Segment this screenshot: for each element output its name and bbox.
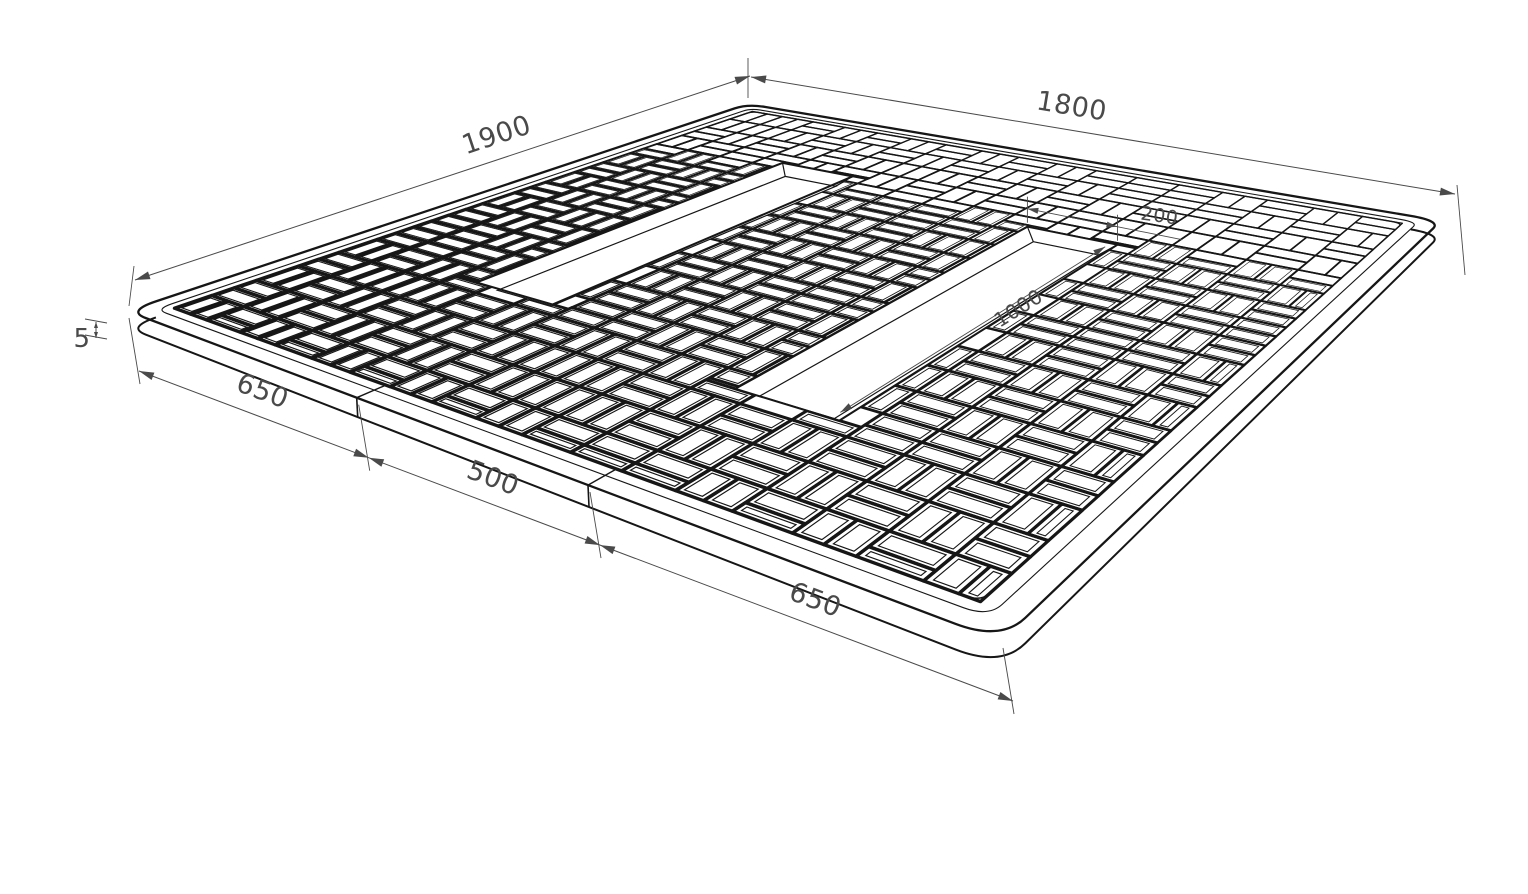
dimension-label-1800: 1800 — [1034, 85, 1109, 127]
isometric-technical-drawing: 1900180065050065051000200 — [0, 0, 1528, 894]
dimension-label-500-mid: 500 — [463, 455, 524, 503]
drawing-canvas: 1900180065050065051000200 — [0, 0, 1528, 894]
dimension-5-thickness: 5 — [73, 319, 107, 354]
dimension-label-650-right: 650 — [785, 576, 846, 624]
dimension-label-1900: 1900 — [458, 109, 535, 161]
dimension-label-650-left: 650 — [232, 368, 293, 416]
dimension-label-5: 5 — [73, 324, 90, 354]
